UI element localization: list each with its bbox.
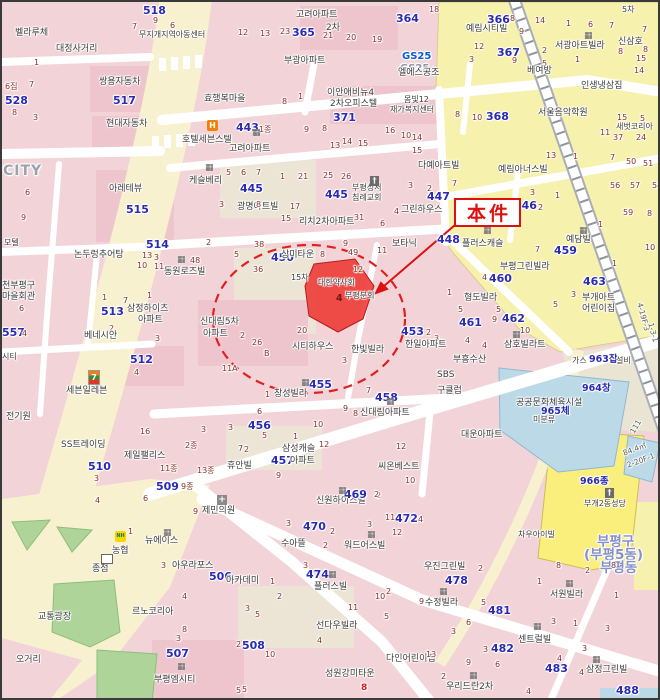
parcel-number-label: 474	[306, 569, 329, 580]
parcel-number-label: 461	[459, 317, 482, 328]
lot-number-label: 50	[626, 158, 636, 166]
map-label: 쌍용자동차	[99, 78, 140, 87]
lot-number-label: 8	[353, 410, 358, 418]
lot-number-label: 12	[319, 441, 329, 449]
lot-number-label: 3	[176, 635, 181, 643]
map-label: 베여방	[527, 67, 552, 76]
lot-number-label: 5	[242, 686, 247, 694]
lot-number-label: 7	[535, 246, 540, 254]
lot-number-label: 2	[323, 542, 328, 550]
lot-number-label: 2	[585, 567, 590, 575]
map-label: 몸빛12	[404, 96, 429, 104]
map-label: 센트럴빌	[518, 636, 551, 645]
lot-number-label: 10	[313, 421, 323, 429]
map-label: 아파트	[203, 330, 228, 339]
lot-number-label: 7	[256, 169, 261, 177]
map-label: 1-3-1	[647, 322, 659, 343]
lot-number-label: 13	[330, 142, 340, 150]
lot-number-label: 4	[557, 655, 562, 663]
bldg-icon: ▦	[338, 487, 347, 496]
map-label: 무지개지역아동센터	[139, 31, 205, 39]
lot-number-label: 2	[426, 329, 431, 337]
lot-number-label: 13	[426, 651, 436, 659]
parcel-number-label: 447	[427, 191, 450, 202]
map-label: 모텔	[4, 239, 19, 247]
parcel-number-label: 508	[242, 640, 265, 651]
bldg-icon: ▦	[177, 663, 186, 672]
lot-number-label: 5	[255, 611, 260, 619]
lot-number-label: 6	[170, 22, 175, 30]
map-label: 논두렁추어탕	[74, 251, 124, 260]
lot-number-label: 8	[182, 626, 187, 634]
map-label: 고려아파트	[229, 145, 270, 154]
lot-number-label: 2	[441, 673, 446, 681]
lot-number-label: 3	[228, 424, 233, 432]
map-label: 동원로즈빌	[164, 268, 205, 277]
parcel-number-label: 453	[401, 326, 424, 337]
lot-number-label: 3	[367, 521, 372, 529]
lot-number-label: 18	[429, 6, 439, 14]
lot-number-label: 14	[535, 17, 545, 25]
map-label: 예림아너스빌	[498, 166, 548, 175]
lot-number-label: 9	[519, 28, 524, 36]
lot-number-label: 2	[542, 47, 547, 55]
lot-number-label: 9	[466, 659, 471, 667]
parcel-number-label: 518	[143, 5, 166, 16]
lot-number-label: 3	[155, 335, 160, 343]
bldg-icon: ▦	[533, 623, 542, 632]
lot-number-label: 9	[21, 214, 26, 222]
map-label: 플러스캐슬	[462, 240, 503, 249]
map-label: 삼성캐슬	[282, 445, 315, 454]
map-label: 다예아트빌	[418, 162, 459, 171]
map-label: 엘에스공조	[398, 69, 439, 78]
lot-number-label: 7	[366, 387, 371, 395]
lot-number-label: 49	[348, 249, 358, 257]
map-label: 인생냉삼집	[581, 82, 622, 91]
lot-number-label: 6	[466, 619, 471, 627]
lot-number-label: 7	[132, 23, 137, 31]
case-annotation-label: 本件	[467, 199, 511, 226]
lot-number-label: 7	[610, 154, 615, 162]
map-label: 111	[629, 419, 643, 435]
lot-number-label: 5	[384, 613, 389, 621]
lot-number-label: 9	[343, 405, 348, 413]
map-label: 아파트	[138, 316, 163, 325]
lot-number-label: 8	[455, 111, 460, 119]
lot-number-label: 7	[29, 81, 34, 89]
lot-number-label: 10	[375, 593, 385, 601]
lot-number-label: 6	[257, 408, 262, 416]
lot-number-label: 11종	[160, 465, 178, 473]
lot-number-label: 6	[19, 305, 24, 313]
lot-number-label: 15	[617, 114, 627, 122]
lot-number-label: 6	[380, 220, 385, 228]
map-label: 설비	[616, 357, 631, 365]
parcel-number-label: 509	[156, 481, 179, 492]
lot-number-label: 24	[636, 134, 646, 142]
map-label: 창성빌라	[274, 390, 307, 399]
map-label: CITY	[3, 164, 42, 178]
hospital-icon: +	[217, 495, 227, 505]
lot-number-label: 4	[317, 637, 322, 645]
parcel-number-label: 513	[101, 306, 124, 317]
parcel-number-label: 472	[395, 513, 418, 524]
lot-number-label: 4	[579, 669, 584, 677]
parcel-number-label: 366	[487, 14, 510, 25]
parcel-number-label: 462	[502, 313, 525, 324]
lot-number-label: 23	[280, 28, 290, 36]
lot-number-label: 8	[643, 46, 648, 54]
lot-number-label: 10	[137, 262, 147, 270]
lot-number-label: 16	[140, 428, 150, 436]
map-label: 부흥수산	[453, 356, 486, 365]
lot-number-label: 14	[412, 134, 422, 142]
lot-number-label: 5	[458, 306, 463, 314]
map-label: 수정빌라	[425, 599, 458, 608]
lot-number-label: 4	[418, 516, 423, 524]
lot-number-label: 3	[245, 605, 250, 613]
map-label: 형도빌라	[464, 294, 497, 303]
lot-number-label: 2	[277, 593, 282, 601]
lot-number-label: 31	[354, 214, 364, 222]
lot-number-label: 5	[481, 599, 486, 607]
bldg-icon: ▦	[584, 32, 593, 41]
lot-number-label: 1	[573, 620, 578, 628]
lot-number-label: 1	[147, 292, 152, 300]
map-label: 대정사거리	[56, 45, 97, 54]
lot-number-label: 8	[618, 48, 623, 56]
map-label: 전기원	[6, 413, 31, 422]
map-label: 제일팰리스	[124, 452, 165, 461]
parcel-number-label: 364	[396, 13, 419, 24]
lot-number-label: 9	[304, 126, 309, 134]
lot-number-label: 21	[298, 173, 308, 181]
lot-number-label: 3	[551, 618, 556, 626]
lot-number-label: 1	[280, 173, 285, 181]
lot-number-label: 13	[546, 152, 556, 160]
parcel-number-label: 514	[146, 239, 169, 250]
lot-number-label: 15	[281, 215, 291, 223]
lot-number-label: 57	[630, 182, 640, 190]
lot-number-label: 12	[238, 29, 248, 37]
map-label: 농협	[112, 547, 129, 556]
map-label: 교통광장	[38, 613, 71, 622]
lot-number-label: 10	[645, 244, 655, 252]
parcel-number-label: 488	[616, 685, 639, 696]
lot-number-label: 8	[322, 125, 327, 133]
bldg-icon: ▦	[367, 531, 376, 540]
lot-number-label: 3	[94, 475, 99, 483]
lot-number-label: 6집	[5, 83, 17, 91]
map-label: 부평분회	[345, 292, 374, 300]
lot-number-label: 16	[385, 127, 395, 135]
lot-number-label: 9	[492, 316, 497, 324]
map-label: 시티하우스	[292, 343, 333, 352]
parcel-number-label: 460	[489, 273, 512, 284]
lot-number-label: 9	[419, 598, 424, 606]
lot-number-label: 4	[182, 593, 187, 601]
parcel-number-label: 463	[583, 276, 606, 287]
lot-number-label: 26	[252, 339, 262, 347]
lot-number-label: 2	[374, 491, 379, 499]
parcel-number-label: 459	[554, 245, 577, 256]
lot-number-label: 8	[611, 562, 616, 570]
lot-number-label: 25	[323, 172, 333, 180]
lot-number-label: 2	[538, 204, 543, 212]
lot-number-label: 3	[571, 291, 576, 299]
map-label: 이안애비뉴4	[327, 89, 374, 98]
lot-number-label: 20	[297, 327, 307, 335]
lot-number-label: 3	[154, 254, 159, 262]
map-label: 수아뜰	[281, 540, 306, 549]
lot-number-label: 1	[575, 56, 580, 64]
parcel-number-label: 512	[130, 354, 153, 365]
church-icon: †	[370, 176, 379, 186]
lot-number-label: 15	[412, 147, 422, 155]
lot-number-label: 7	[452, 180, 457, 188]
map-label: 침례교회	[352, 194, 381, 202]
lot-number-label: 1	[614, 592, 619, 600]
lot-number-label: 3	[582, 645, 587, 653]
map-label: 새벗코리아	[616, 123, 653, 131]
map-label: 예림시티빌	[466, 25, 507, 34]
lot-number-label: 1	[102, 294, 107, 302]
lot-number-label: 4	[22, 330, 27, 338]
lot-number-label: 5	[234, 251, 239, 259]
lot-number-label: 6	[25, 189, 30, 197]
bldg-icon: ▦	[483, 227, 492, 236]
map-label: 베네시안	[84, 332, 117, 341]
lot-number-label: 11	[377, 247, 387, 255]
lot-number-label: 11	[154, 263, 164, 271]
lot-number-label: 10	[401, 132, 411, 140]
lot-number-label: 3	[469, 56, 474, 64]
bldg-icon: ▦	[205, 164, 214, 173]
map-label: 보타닉	[392, 240, 417, 249]
parcel-number-label: 481	[488, 605, 511, 616]
map-label: 신대림5차	[200, 318, 239, 327]
lot-number-label: 3	[286, 520, 291, 528]
map-label: 현대자동차	[106, 120, 147, 129]
lot-number-label: 1	[447, 289, 452, 297]
lot-number-label: 15	[358, 140, 368, 148]
hotel-icon: H	[207, 120, 218, 131]
lot-number-label: 10	[405, 477, 415, 485]
map-label: 서원빌라	[550, 591, 583, 600]
lot-number-label: 11	[385, 514, 395, 522]
lot-number-label: 2	[386, 588, 391, 596]
lot-number-label: 5	[236, 687, 241, 695]
lot-number-label: 3	[342, 357, 347, 365]
parcel-number-label: 469	[344, 489, 367, 500]
nh-icon: NH	[115, 531, 126, 542]
church-icon: †	[605, 488, 614, 498]
map-label: 오거리	[16, 656, 41, 665]
lot-number-label: 10	[520, 327, 530, 335]
map-label: 리치2차아파트	[299, 218, 354, 227]
lot-number-label: 3	[605, 625, 610, 633]
bldg-icon: ▦	[592, 656, 601, 665]
map-labels-layer: 벨라루체대정사거리518976무지개지역아동센터176집52883쌍용자동차51…	[2, 2, 660, 700]
map-label: 부평엠시티	[154, 676, 195, 685]
lot-number-label: 6	[588, 21, 593, 29]
map-label: 부광아파트	[284, 57, 325, 66]
parcel-number-label: 455	[309, 379, 332, 390]
lot-number-label: 1	[573, 153, 578, 161]
bldg-icon: ▦	[469, 672, 478, 681]
map-label: 성원강미타운	[325, 670, 375, 679]
lot-number-label: 4	[465, 337, 470, 345]
map-label: 마을회관	[2, 293, 35, 302]
lot-number-label: 2	[244, 446, 249, 454]
lot-number-label: 10	[265, 651, 275, 659]
map-label: 구클럽	[437, 387, 462, 396]
lot-number-label: 3	[201, 426, 206, 434]
lot-number-label: 54	[652, 182, 660, 190]
map-label: 선다우빌라	[316, 622, 357, 631]
map-label: 서울음악학원	[538, 109, 588, 118]
lot-number-label: 9	[193, 508, 198, 516]
lot-number-label: 12	[392, 529, 402, 537]
lot-number-label: 8	[282, 98, 287, 106]
map-label: 부평그린빌라	[500, 263, 550, 272]
lot-number-label: 17	[290, 203, 300, 211]
lot-number-label: 1	[293, 433, 298, 441]
map-label: 상미타운	[281, 251, 314, 260]
admin-area-label: 부평동	[600, 562, 637, 576]
lot-number-label: 15	[636, 55, 646, 63]
bldg-icon: ▦	[512, 331, 521, 340]
map-label: 차우아이빌	[518, 531, 555, 539]
lot-number-label: 1	[270, 578, 275, 586]
lot-number-label: 11A	[222, 365, 238, 373]
lot-number-label: 8	[320, 251, 325, 259]
lot-number-label: 3	[483, 646, 488, 654]
map-label: 가스	[572, 357, 587, 365]
map-label: 4	[336, 294, 343, 304]
lot-number-label: 4	[134, 369, 139, 377]
lot-number-label: 2	[206, 239, 211, 247]
map-label: 미분류	[533, 416, 555, 424]
parcel-number-label: 371	[333, 112, 356, 123]
lot-number-label: 1	[555, 192, 560, 200]
map-label: 신대림아파트	[360, 409, 410, 418]
map-label: 아카데미	[226, 577, 259, 586]
lot-number-label: 9종	[181, 483, 193, 491]
lot-number-label: 56	[610, 182, 620, 190]
terminal-icon	[101, 554, 113, 564]
map-label: 재가복지센터	[390, 106, 434, 114]
lot-number-label: 2	[240, 332, 245, 340]
lot-number-label: 7	[609, 22, 614, 30]
parcel-number-label: 445	[325, 189, 348, 200]
bldg-icon: ▦	[386, 398, 395, 407]
lot-number-label: 38	[254, 241, 264, 249]
lot-number-label: 1	[34, 59, 39, 67]
map-label: 케슬베리	[189, 177, 222, 186]
lot-number-label: 7	[642, 26, 647, 34]
parcel-number-label: 528	[5, 95, 28, 106]
lot-number-label: 4	[394, 208, 399, 216]
lot-number-label: 8	[556, 562, 561, 570]
map-label: 2차오피스텔	[330, 100, 377, 109]
parcel-number-label: 456	[248, 420, 271, 431]
lot-number-label: 12	[353, 266, 363, 274]
map-label: SS트레이딩	[61, 441, 106, 450]
lot-number-label: 2종	[185, 442, 197, 450]
lot-number-label: 5	[262, 432, 267, 440]
lot-number-label: 3	[530, 189, 535, 197]
case-annotation-box: 本件	[454, 198, 521, 227]
lot-number-label: 11	[348, 604, 358, 612]
parcel-number-label: 478	[445, 575, 468, 586]
parcel-number-label: 368	[486, 111, 509, 122]
map-label: 우리드란2차	[446, 683, 493, 692]
lot-number-label: 4	[482, 342, 487, 350]
parcel-number-label: 445	[240, 183, 263, 194]
lot-number-label: 2	[478, 565, 483, 573]
lot-number-label: 2	[236, 641, 241, 649]
lot-number-label: 7	[238, 445, 243, 453]
parcel-number-label: 482	[491, 643, 514, 654]
map-label: 한일아파트	[405, 341, 446, 350]
lot-number-label: 3	[451, 628, 456, 636]
map-label: 효행복마을	[204, 95, 245, 104]
map-label: 대한약사회	[318, 279, 355, 287]
parcel-number-label: 483	[545, 663, 568, 674]
lot-number-label: B	[264, 350, 270, 358]
map-label: 부개아트	[582, 294, 615, 303]
lot-number-label: 26	[341, 173, 351, 181]
lot-number-label: 51	[643, 160, 653, 168]
bldg-icon: ▦	[163, 529, 172, 538]
lot-number-label: 1	[128, 528, 133, 536]
map-label: 부개2동성당	[584, 500, 626, 508]
map-label: 제민의원	[202, 507, 235, 516]
map-canvas[interactable]: 벨라루체대정사거리518976무지개지역아동센터176집52883쌍용자동차51…	[0, 0, 660, 700]
lot-number-label: 1	[598, 221, 603, 229]
parcel-number-label: 966종	[580, 477, 609, 487]
map-label: 한빛빌라	[351, 346, 384, 355]
map-label: 천부평구	[2, 282, 35, 291]
lot-number-label: 2	[330, 528, 335, 536]
parcel-number-label: 470	[303, 521, 326, 532]
map-label: 세븐일레븐	[66, 387, 107, 396]
lot-number-label: 4	[482, 274, 487, 282]
lot-number-label: 3	[303, 562, 308, 570]
lot-number-label: 9	[343, 240, 348, 248]
parcel-number-label: 365	[292, 27, 315, 38]
bldg-icon: ▦	[177, 256, 186, 265]
lot-number-label: 3	[219, 201, 224, 209]
map-label: 르노코리아	[132, 608, 173, 617]
map-label: 뉴에이스	[145, 537, 178, 546]
lot-number-label: 9	[153, 17, 158, 25]
map-label: 삼정하이츠	[127, 305, 168, 314]
lot-number-label: 5	[496, 306, 501, 314]
lot-number-label: 3	[408, 182, 413, 190]
lot-number-label: 8	[510, 15, 515, 23]
lot-number-label: 9	[512, 57, 517, 65]
lot-number-label: 13	[142, 252, 152, 260]
lot-number-label: 9	[276, 472, 281, 480]
lot-number-label: 21	[323, 32, 333, 40]
lot-number-label: 1	[612, 260, 617, 268]
lot-number-label: 20	[346, 34, 356, 42]
lot-number-label: 11	[600, 129, 610, 137]
map-label: 벨라루체	[15, 29, 48, 38]
